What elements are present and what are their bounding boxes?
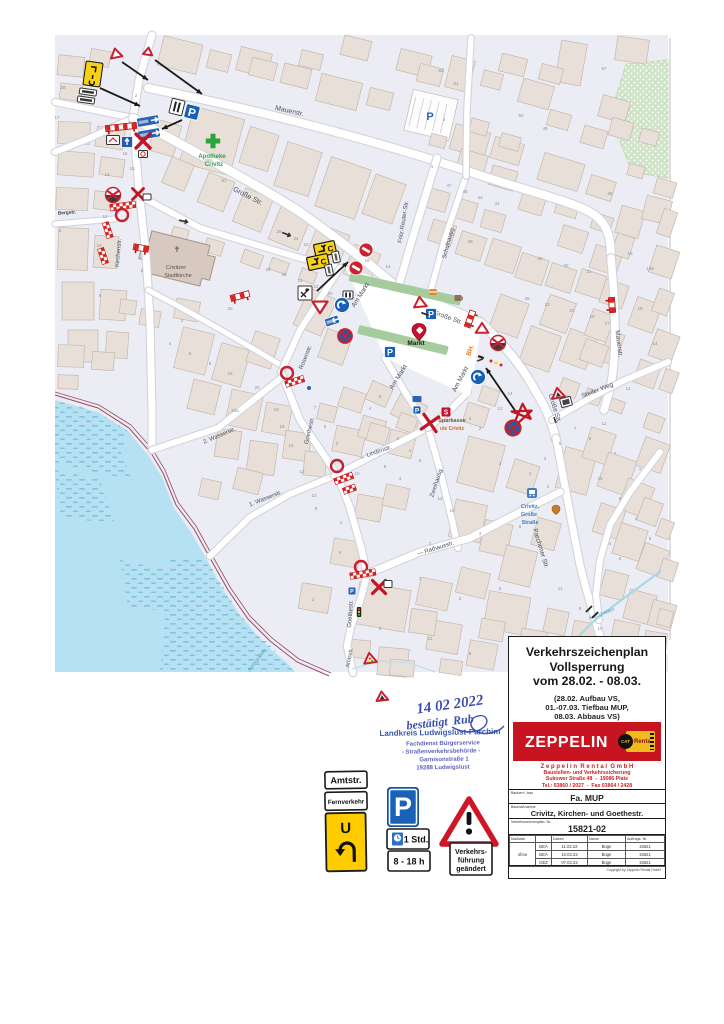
svg-text:4: 4 (339, 550, 342, 555)
svg-text:9: 9 (619, 496, 622, 501)
svg-text:3: 3 (459, 596, 462, 601)
svg-text:31: 31 (449, 232, 455, 237)
svg-text:19: 19 (589, 314, 595, 319)
svg-text:15: 15 (122, 151, 128, 156)
svg-text:11: 11 (602, 421, 607, 426)
svg-text:3: 3 (544, 456, 547, 461)
svg-text:Stadtkirche: Stadtkirche (164, 273, 192, 279)
svg-text:8: 8 (579, 606, 582, 611)
svg-text:6: 6 (649, 536, 652, 541)
svg-text:ule Crivitz: ule Crivitz (440, 426, 464, 432)
svg-text:28: 28 (265, 267, 271, 272)
svg-text:8: 8 (209, 361, 212, 366)
svg-text:45: 45 (462, 189, 468, 194)
svg-text:18: 18 (273, 407, 279, 412)
svg-text:4: 4 (409, 448, 412, 453)
svg-text:1: 1 (529, 471, 532, 476)
svg-text:Fernverkehr: Fernverkehr (328, 798, 365, 806)
svg-text:12: 12 (299, 469, 305, 474)
svg-text:61: 61 (453, 81, 459, 86)
svg-text:1: 1 (419, 576, 422, 581)
svg-text:16: 16 (637, 306, 643, 311)
svg-text:Amtstr.: Amtstr. (330, 775, 361, 786)
svg-text:5: 5 (519, 524, 522, 529)
svg-text:10: 10 (354, 471, 360, 476)
svg-text:9: 9 (589, 436, 592, 441)
svg-text:50: 50 (518, 113, 524, 118)
svg-text:9: 9 (469, 651, 472, 656)
svg-text:P: P (387, 348, 393, 358)
svg-text:10: 10 (96, 243, 102, 248)
svg-text:3: 3 (336, 441, 339, 446)
svg-text:S: S (444, 410, 449, 417)
svg-text:20a: 20a (231, 408, 239, 413)
svg-text:22: 22 (563, 263, 569, 268)
svg-text:P: P (350, 589, 354, 595)
svg-text:5: 5 (324, 424, 327, 429)
svg-text:29: 29 (467, 239, 473, 244)
svg-text:Apotheke: Apotheke (198, 154, 226, 160)
svg-text:23: 23 (544, 302, 550, 307)
svg-text:✝: ✝ (174, 245, 181, 254)
svg-text:Verkehrs-: Verkehrs- (455, 849, 488, 856)
svg-text:2a: 2a (227, 306, 233, 311)
svg-text:5: 5 (559, 441, 562, 446)
svg-text:2: 2 (547, 484, 550, 489)
svg-text:10: 10 (597, 476, 603, 481)
svg-text:5: 5 (499, 586, 502, 591)
svg-text:6: 6 (384, 464, 387, 469)
svg-text:7: 7 (314, 405, 317, 410)
svg-text:26: 26 (276, 229, 282, 234)
svg-text:Sparkasse: Sparkasse (438, 418, 466, 424)
svg-text:6: 6 (189, 351, 192, 356)
svg-text:18: 18 (627, 251, 633, 256)
svg-text:11: 11 (558, 586, 563, 591)
svg-text:2: 2 (59, 228, 62, 233)
svg-text:führung: führung (458, 858, 484, 865)
svg-text:8 - 18 h: 8 - 18 h (393, 857, 424, 867)
svg-text:10: 10 (597, 626, 603, 631)
svg-text:3: 3 (479, 531, 482, 536)
svg-text:12: 12 (437, 496, 443, 501)
svg-text:4: 4 (635, 516, 638, 521)
svg-text:10: 10 (449, 508, 455, 513)
svg-text:Große: Große (521, 512, 537, 518)
svg-text:4: 4 (399, 476, 402, 481)
svg-text:47: 47 (446, 183, 452, 188)
svg-text:498: 498 (204, 158, 212, 163)
svg-text:49: 49 (542, 126, 548, 131)
svg-text:14: 14 (507, 391, 513, 396)
svg-text:16: 16 (279, 424, 285, 429)
svg-text:22: 22 (303, 242, 309, 247)
svg-text:15: 15 (227, 371, 233, 376)
svg-text:P: P (415, 408, 420, 415)
svg-text:U: U (340, 820, 351, 837)
svg-text:17: 17 (604, 321, 610, 326)
svg-text:18: 18 (129, 166, 135, 171)
svg-text:Markt: Markt (407, 340, 425, 347)
svg-text:4: 4 (609, 541, 612, 546)
svg-text:14: 14 (652, 341, 658, 346)
svg-text:67: 67 (601, 66, 607, 71)
svg-text:41: 41 (494, 201, 500, 206)
svg-text:11: 11 (626, 386, 631, 391)
svg-text:1: 1 (639, 466, 642, 471)
svg-text:P: P (394, 792, 412, 822)
svg-text:6: 6 (379, 394, 382, 399)
svg-text:26: 26 (281, 272, 287, 277)
svg-text:14: 14 (385, 264, 391, 269)
svg-text:2: 2 (312, 597, 315, 602)
svg-text:10: 10 (311, 493, 317, 498)
svg-text:17: 17 (54, 115, 60, 120)
svg-text:4: 4 (369, 406, 372, 411)
svg-text:28: 28 (60, 85, 66, 90)
svg-text:Crivitzer: Crivitzer (166, 265, 186, 271)
svg-text:2: 2 (499, 461, 502, 466)
svg-text:3: 3 (443, 117, 446, 122)
svg-text:12: 12 (497, 406, 503, 411)
svg-text:Straße: Straße (521, 520, 538, 526)
svg-text:8: 8 (99, 293, 102, 298)
svg-text:14: 14 (104, 172, 110, 177)
svg-text:43: 43 (477, 195, 483, 200)
svg-text:20: 20 (327, 291, 333, 296)
svg-text:21: 21 (586, 269, 592, 274)
svg-text:7: 7 (574, 426, 577, 431)
svg-text:14: 14 (288, 443, 294, 448)
svg-text:5: 5 (619, 556, 622, 561)
svg-text:Crivitz,: Crivitz, (521, 504, 540, 510)
svg-text:11: 11 (428, 636, 433, 641)
svg-text:35: 35 (607, 191, 613, 196)
svg-text:51: 51 (221, 178, 227, 183)
svg-text:1: 1 (431, 164, 434, 169)
svg-text:geändert: geändert (456, 866, 486, 873)
svg-text:7: 7 (614, 451, 617, 456)
svg-text:4: 4 (469, 416, 472, 421)
svg-text:2: 2 (479, 426, 482, 431)
svg-text:P: P (426, 111, 433, 123)
svg-text:1: 1 (340, 520, 343, 525)
svg-text:24: 24 (293, 236, 299, 241)
svg-text:63: 63 (438, 68, 444, 73)
svg-text:25: 25 (524, 296, 530, 301)
svg-text:26: 26 (537, 256, 543, 261)
svg-text:19288 Ludwigslust: 19288 Ludwigslust (416, 765, 469, 772)
svg-text:9: 9 (379, 626, 382, 631)
svg-text:6: 6 (419, 458, 422, 463)
svg-text:166: 166 (646, 266, 654, 271)
svg-text:2: 2 (181, 318, 184, 323)
svg-text:1 Std.: 1 Std. (404, 835, 429, 845)
svg-text:20: 20 (254, 385, 260, 390)
svg-text:22: 22 (313, 284, 319, 289)
svg-text:16: 16 (364, 258, 370, 263)
svg-text:3: 3 (429, 541, 432, 546)
svg-text:2: 2 (397, 436, 400, 441)
svg-text:12: 12 (102, 214, 108, 219)
svg-text:Garnisonstraße 1: Garnisonstraße 1 (419, 757, 469, 764)
svg-text:21: 21 (569, 308, 575, 313)
svg-text:2: 2 (135, 93, 138, 98)
svg-text:Bergstr.: Bergstr. (58, 209, 77, 216)
svg-text:4: 4 (169, 341, 172, 346)
svg-text:24: 24 (297, 278, 303, 283)
svg-text:8: 8 (315, 506, 318, 511)
